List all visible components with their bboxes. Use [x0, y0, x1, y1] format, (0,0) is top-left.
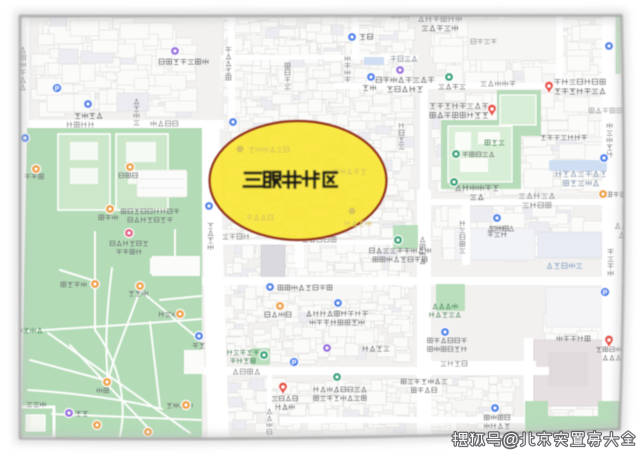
svg-text:P: P: [603, 290, 608, 297]
svg-text:P: P: [55, 86, 60, 93]
svg-text:@: @: [502, 431, 519, 449]
svg-text:P: P: [292, 360, 297, 367]
